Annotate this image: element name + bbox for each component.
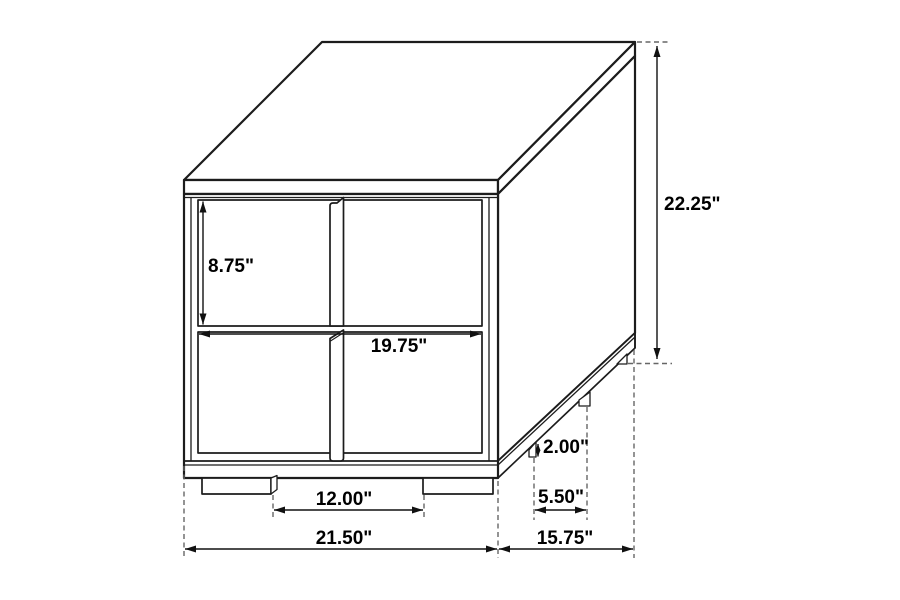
dim-label-overall-width: 21.50" bbox=[316, 528, 373, 549]
dim-label-foot-height: 2.00" bbox=[543, 437, 589, 458]
top-panel-front-edge bbox=[184, 180, 498, 194]
front-left-foot-side bbox=[271, 476, 277, 495]
dimension-front-feet-spacing: 12.00" bbox=[274, 489, 423, 510]
front-right-foot bbox=[423, 478, 493, 494]
dimension-overall-height: 22.25" bbox=[657, 46, 721, 359]
dimension-overall-depth: 15.75" bbox=[499, 528, 633, 549]
dimension-foot-height: 2.00" bbox=[538, 437, 589, 458]
furniture-dimension-diagram: 22.25" 8.75" 19.75" 12.00" 21.50" 15.75"… bbox=[0, 0, 900, 600]
dim-label-side-feet-spacing: 5.50" bbox=[538, 487, 584, 508]
front-left-foot bbox=[202, 478, 271, 494]
dim-label-drawer-width: 19.75" bbox=[371, 336, 428, 357]
drawer-handle-bottom bbox=[330, 330, 344, 461]
dim-label-front-feet-spacing: 12.00" bbox=[316, 489, 373, 510]
dim-label-overall-height: 22.25" bbox=[664, 194, 721, 215]
diagram-canvas: 22.25" 8.75" 19.75" 12.00" 21.50" 15.75"… bbox=[0, 0, 900, 600]
dimension-side-feet-spacing: 5.50" bbox=[535, 487, 586, 510]
dimension-overall-width: 21.50" bbox=[185, 528, 497, 549]
drawer-handle-top bbox=[330, 198, 344, 327]
dim-label-overall-depth: 15.75" bbox=[537, 528, 594, 549]
dim-label-drawer-height: 8.75" bbox=[208, 256, 254, 277]
